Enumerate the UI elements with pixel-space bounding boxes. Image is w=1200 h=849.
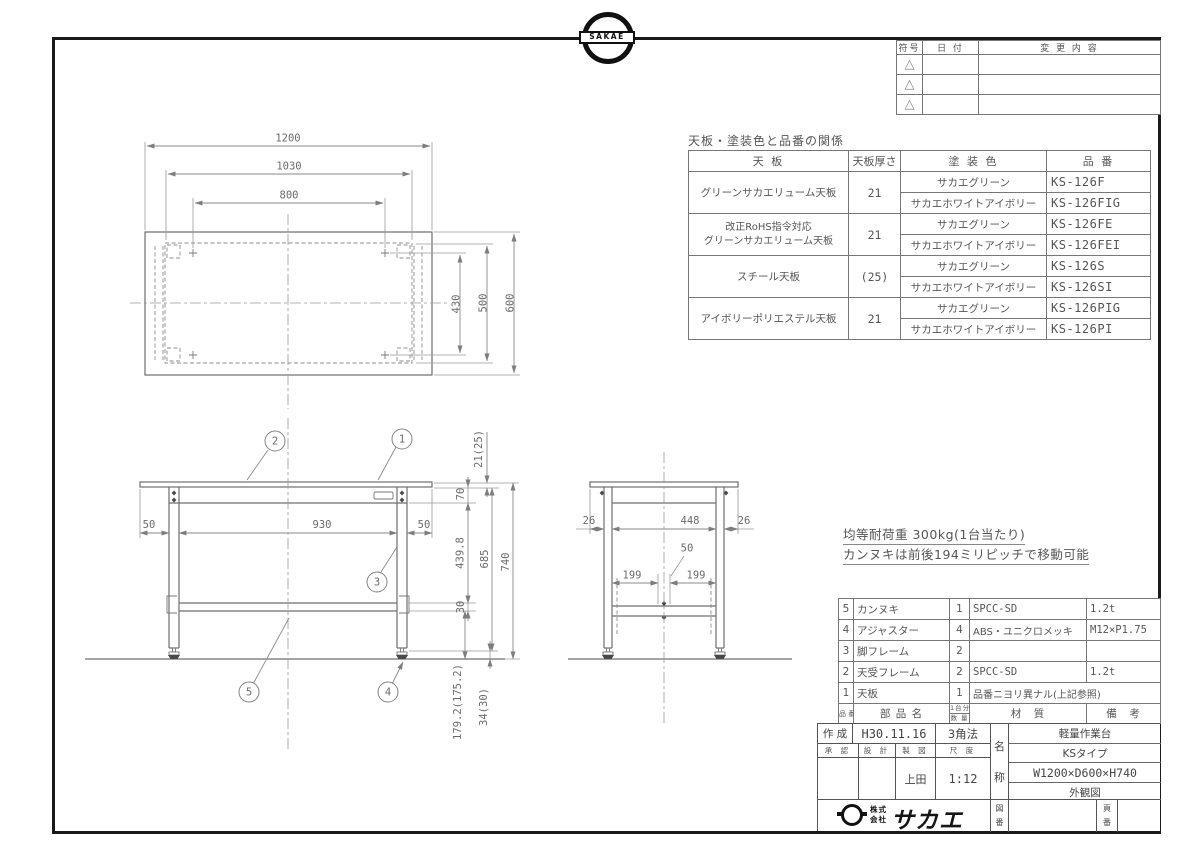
spec-thickness: (25) [849,256,901,298]
part-material: 品番ニヨリ異ナル(上記参照) [970,683,1161,704]
revision-triangle-icon: △ [905,77,915,92]
created-label: 作 成 [818,724,853,744]
product-name: 軽量作業台 [1009,724,1161,744]
parts-row: 1 天板 1 品番ニヨリ異ナル(上記参照) [839,683,1161,704]
balloon-5-label: 5 [246,687,252,699]
spec-thickness: 21 [849,214,901,256]
dim-front-foot-height: 34(30) [478,688,490,726]
drafter-name: 上田 [896,758,936,799]
spec-col-color: 塗 装 色 [901,151,1047,172]
dim-front-right-overhang: 50 [418,519,431,531]
name-label: 名 称 [991,724,1009,799]
product-size: W1200×D600×H740 [1009,763,1161,783]
spec-color: サカエホワイトアイボリー [901,235,1047,256]
draft-label: 製 図 [896,744,936,758]
spec-part-number: KS-126PI [1047,319,1151,340]
spec-col-number: 品 番 [1047,151,1151,172]
drawing-scale: 1:12 [936,758,991,799]
note-bar-pitch: カンヌキは前後194ミリピッチで移動可能 [843,544,1089,565]
dim-front-lower-leg: 179.2(175.2) [452,664,464,740]
spec-color: サカエグリーン [901,214,1047,235]
spec-col-thickness: 天板厚さ [849,151,901,172]
dim-side-pitch-right: 199 [687,570,706,582]
dim-top-overall-width: 1200 [275,133,300,145]
parts-col-material: 材 質 [970,704,1087,724]
dim-front-frame-height: 70 [455,488,467,501]
spec-table-title: 天板・塗装色と品番の関係 [688,132,844,151]
spec-thickness: 21 [849,298,901,340]
parts-row: 3 脚フレーム 2 [839,641,1161,662]
drawing-no-cell [1009,799,1097,832]
dim-front-left-overhang: 50 [143,519,156,531]
spec-top-name: スチール天板 [689,269,848,284]
balloon-4-label: 4 [385,687,391,699]
drawing-no-label: 図 番 [991,799,1009,832]
part-qty: 1 [950,599,970,620]
revision-row: △ [897,75,1161,95]
spec-color: サカエグリーン [901,298,1047,319]
balloon-2-label: 2 [272,436,278,448]
spec-row: 改正RoHS指令対応グリーンサカエリューム天板 21 サカエグリーン KS-12… [689,214,1151,235]
part-no: 4 [839,620,854,641]
parts-table: 5 カンヌキ 1 SPCC-SD 1.2t 4 アジャスター 4 ABS・ユニク… [838,598,1161,724]
dim-front-overall-height: 740 [500,553,512,572]
revision-row: △ [897,95,1161,115]
part-no: 3 [839,641,854,662]
part-remarks: M12×P1.75 [1087,620,1161,641]
spec-part-number: KS-126FEI [1047,235,1151,256]
part-qty: 2 [950,641,970,662]
product-type: KSタイプ [1009,744,1161,764]
part-qty: 1 [950,683,970,704]
spec-color: サカエグリーン [901,172,1047,193]
parts-col-remarks: 備 考 [1087,704,1161,724]
part-no: 1 [839,683,854,704]
created-date: H30.11.16 [853,724,936,744]
part-remarks: 1.2t [1087,599,1161,620]
company-prefix: 株式 会社 [870,805,887,825]
dim-top-leg-pitch: 800 [280,190,299,202]
spec-color: サカエグリーン [901,256,1047,277]
spec-part-number: KS-126S [1047,256,1151,277]
revision-triangle-icon: △ [905,97,915,112]
dim-top-overall-depth: 600 [505,294,517,313]
spec-part-number: KS-126FIG [1047,193,1151,214]
spec-part-number: KS-126FE [1047,214,1151,235]
parts-col-no: 品 番 [839,704,854,724]
revision-table: 符号 日 付 変 更 内 容 △ △ △ [896,40,1161,115]
part-name: カンヌキ [854,599,950,620]
company-name: サカエ [891,801,963,835]
part-remarks [1087,641,1161,662]
spec-part-number: KS-126SI [1047,277,1151,298]
product-name-area: 軽量作業台 KSタイプ W1200×D600×H740 外観図 [1009,724,1161,799]
spec-part-number: KS-126PIG [1047,298,1151,319]
projection-method: 3角法 [936,724,991,744]
spec-color: サカエホワイトアイボリー [901,193,1047,214]
dim-front-under-top: 685 [479,550,491,569]
spec-top-name: グリーンサカエリューム天板 [689,185,848,200]
parts-col-name: 部 品 名 [854,704,950,724]
parts-header-row: 品 番 部 品 名 1台分 数 量 材 質 備 考 [839,704,1161,724]
parts-row: 2 天受フレーム 2 SPCC-SD 1.2t [839,662,1161,683]
spec-thickness: 21 [849,172,901,214]
part-name: アジャスター [854,620,950,641]
revision-col-mark: 符号 [897,41,923,55]
part-material: ABS・ユニクロメッキ [970,620,1087,641]
design-sign-cell [859,758,896,799]
part-material [970,641,1087,662]
part-material: SPCC-SD [970,599,1087,620]
parts-row: 5 カンヌキ 1 SPCC-SD 1.2t [839,599,1161,620]
part-qty: 2 [950,662,970,683]
dim-top-inner-depth: 430 [451,295,463,314]
top-view: 1200 1030 800 430 500 600 [130,133,520,410]
note-load-capacity: 均等耐荷重 300kg(1台当たり) [843,524,1025,545]
page-no-cell [818,799,861,832]
part-qty: 4 [950,620,970,641]
spec-table: 天 板 天板厚さ 塗 装 色 品 番 グリーンサカエリューム天板 21 サカエグ… [688,150,1151,340]
part-name: 天板 [854,683,950,704]
spec-color: サカエホワイトアイボリー [901,319,1047,340]
dim-side-bar-gap: 50 [681,543,694,555]
dim-front-bar-thickness: 30 [455,601,467,614]
dim-side-depth-span: 448 [681,515,700,527]
title-block: 作 成 H30.11.16 3角法 承 認 設 計 製 図 尺 度 上田 1:1… [817,723,1160,831]
revision-header-row: 符号 日 付 変 更 内 容 [897,41,1161,55]
dim-side-left-overhang: 26 [583,515,596,527]
parts-col-qty-top: 1台分 [950,704,969,714]
dim-front-leg-span: 930 [313,519,332,531]
balloon-1-label: 1 [399,434,405,446]
spec-row: スチール天板 (25) サカエグリーン KS-126S [689,256,1151,277]
spec-top-name: アイボリーポリエステル天板 [689,311,848,326]
parts-row: 4 アジャスター 4 ABS・ユニクロメッキ M12×P1.75 [839,620,1161,641]
spec-row: アイボリーポリエステル天板 21 サカエグリーン KS-126PIG [689,298,1151,319]
part-no: 2 [839,662,854,683]
approved-sign-cell [818,758,859,799]
side-view: 26 448 26 50 199 199 [568,452,792,726]
dim-side-pitch-left: 199 [623,570,642,582]
balloon-3-label: 3 [374,577,380,589]
revision-col-change: 変 更 内 容 [979,41,1161,55]
page-no-label: 頁 番 [1097,799,1118,832]
front-view: 50 930 50 21(25) 70 439.8 685 740 30 34(… [85,418,520,750]
spec-row: グリーンサカエリューム天板 21 サカエグリーン KS-126F [689,172,1151,193]
part-name: 天受フレーム [854,662,950,683]
scale-label: 尺 度 [936,744,991,758]
spec-col-top: 天 板 [689,151,849,172]
spec-header-row: 天 板 天板厚さ 塗 装 色 品 番 [689,151,1151,172]
part-material: SPCC-SD [970,662,1087,683]
approved-label: 承 認 [818,744,859,758]
dim-front-upper-leg: 439.8 [455,537,467,569]
revision-triangle-icon: △ [905,57,915,72]
dim-top-frame-width: 1030 [276,161,301,173]
design-label: 設 計 [859,744,896,758]
spec-top-name: 改正RoHS指令対応 [689,221,848,235]
part-no: 5 [839,599,854,620]
dim-front-top-thickness: 21(25) [473,430,485,468]
part-remarks: 1.2t [1087,662,1161,683]
spec-color: サカエホワイトアイボリー [901,277,1047,298]
drawing-sheet: SAKAE 1200 1030 800 [0,0,1200,849]
dim-top-frame-depth: 500 [478,294,490,313]
revision-row: △ [897,55,1161,75]
revision-col-date: 日 付 [923,41,979,55]
parts-col-qty-bottom: 数 量 [950,714,969,723]
part-name: 脚フレーム [854,641,950,662]
dim-side-right-overhang: 26 [738,515,751,527]
spec-part-number: KS-126F [1047,172,1151,193]
